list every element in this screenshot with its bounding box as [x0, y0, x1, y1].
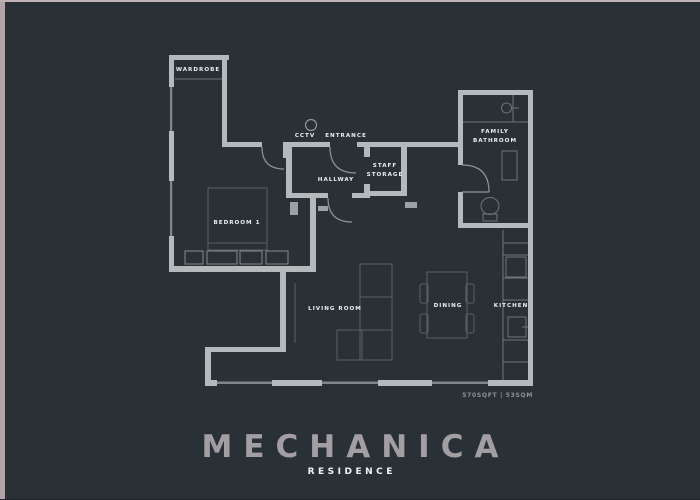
wall-marker [290, 202, 298, 215]
wall [458, 223, 533, 228]
residence-title: MECHANICA [0, 429, 700, 465]
wall [458, 192, 463, 228]
floor-plan: WARDROBE BEDROOM 1 CCTV ENTRANCE HALLWAY… [0, 0, 700, 500]
toilet-icon [481, 198, 499, 215]
window [170, 87, 172, 131]
storage-unit [240, 251, 262, 264]
bathroom-label-line2: BATHROOM [473, 138, 517, 144]
area-label: 570SQFT | 53SQM [462, 392, 533, 399]
wall [272, 380, 322, 386]
wall [286, 193, 328, 198]
staff-storage-label-line2: STORAGE [367, 172, 404, 178]
wall [286, 142, 292, 198]
wall [357, 142, 458, 147]
staff-storage-label-line1: STAFF [373, 163, 397, 169]
living-room-label: LIVING ROOM [308, 306, 362, 312]
wall-marker [318, 206, 328, 211]
bedroom-label: BEDROOM 1 [214, 220, 261, 226]
entrance-door-arc [330, 147, 356, 173]
wall [222, 55, 227, 147]
window [322, 382, 378, 385]
hallway-door-arc [328, 198, 352, 222]
dining-label: DINING [434, 303, 463, 309]
sink-icon [502, 103, 512, 113]
window [432, 382, 488, 385]
bedroom-door-arc [262, 147, 284, 169]
wall [205, 347, 286, 352]
wall [378, 380, 432, 386]
wall [458, 90, 533, 95]
wall [205, 380, 217, 386]
sofa [360, 264, 392, 360]
entrance-label: ENTRANCE [325, 133, 367, 139]
window [217, 382, 272, 385]
wall [169, 236, 174, 271]
wardrobe-label: WARDROBE [176, 67, 220, 73]
wall [310, 198, 316, 271]
toilet-cistern [483, 214, 497, 221]
shower-unit [502, 151, 517, 180]
bathroom-fixtures [463, 95, 528, 221]
wall [169, 55, 174, 87]
kitchen-label: KITCHEN [494, 303, 529, 309]
sofa-chaise [337, 330, 362, 360]
bathroom-label-line1: FAMILY [481, 129, 509, 135]
wall [458, 90, 463, 165]
wall [169, 266, 316, 272]
wall [364, 147, 370, 157]
storage-unit [266, 251, 288, 264]
wall [364, 191, 407, 196]
wall-marker [405, 202, 417, 208]
bedroom-furniture [175, 79, 288, 264]
windows [170, 87, 488, 384]
wall [280, 272, 286, 352]
storage-unit [185, 251, 203, 264]
wall [169, 131, 174, 181]
kitchen-appliance [506, 257, 526, 277]
bed [208, 188, 267, 250]
wall [169, 55, 229, 60]
wall [222, 142, 262, 147]
living-room-furniture [295, 264, 392, 360]
wall [528, 90, 533, 386]
bathroom-door-arc [462, 165, 489, 192]
wall [488, 380, 533, 386]
hallway-label: HALLWAY [318, 177, 354, 183]
residence-subtitle: RESIDENCE [0, 467, 700, 477]
cctv-camera-icon [306, 120, 317, 131]
window [170, 181, 172, 236]
wall-markers [290, 202, 417, 215]
storage-unit [207, 251, 237, 264]
cctv-label: CCTV [295, 133, 315, 139]
